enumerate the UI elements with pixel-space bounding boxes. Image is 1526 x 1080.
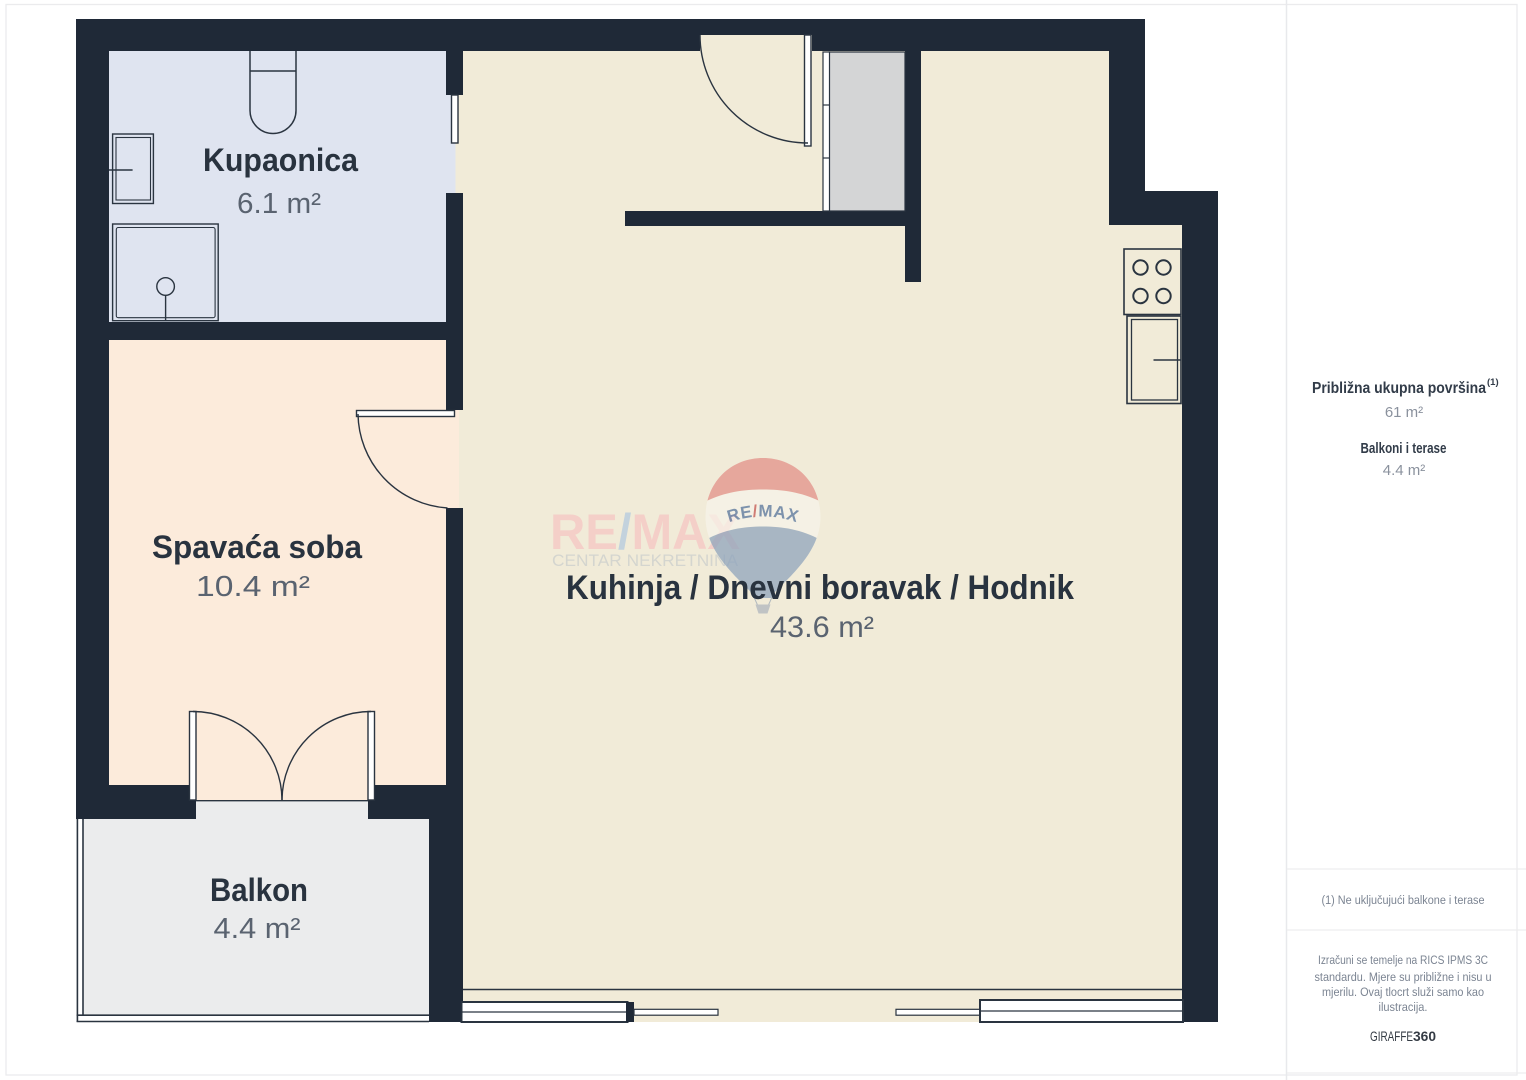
svg-text:61 m²: 61 m² [1385,404,1423,421]
svg-text:CENTAR NEKRETNINA: CENTAR NEKRETNINA [552,551,739,570]
svg-text:Kuhinja / Dnevni boravak / Hod: Kuhinja / Dnevni boravak / Hodnik [566,569,1074,607]
svg-text:Balkon: Balkon [210,872,308,908]
svg-text:Balkoni i terase: Balkoni i terase [1361,441,1447,457]
svg-text:4.4 m²: 4.4 m² [214,913,301,945]
svg-text:Približna ukupna površina: Približna ukupna površina [1312,380,1486,397]
svg-text:ilustracija.: ilustracija. [1379,1000,1428,1014]
svg-text:43.6 m²: 43.6 m² [770,611,874,644]
svg-text:Spavaća soba: Spavaća soba [152,529,362,565]
svg-text:10.4 m²: 10.4 m² [196,571,310,603]
svg-text:Kupaonica: Kupaonica [203,142,358,178]
svg-text:(1) Ne uključujući balkone i t: (1) Ne uključujući balkone i terase [1322,893,1485,907]
svg-text:Izračuni se temelje na RICS IP: Izračuni se temelje na RICS IPMS 3C [1318,953,1488,967]
svg-text:4.4 m²: 4.4 m² [1383,462,1426,479]
svg-text:mjerilu. Ovaj tlocrt služi sam: mjerilu. Ovaj tlocrt služi samo kao [1322,985,1484,999]
svg-text:standardu. Mjere su približne: standardu. Mjere su približne i nisu u [1315,970,1492,984]
svg-text:GIRAFFE: GIRAFFE [1370,1029,1413,1044]
svg-text:(1): (1) [1487,377,1499,388]
svg-text:6.1 m²: 6.1 m² [237,188,321,220]
svg-text:360: 360 [1413,1029,1436,1044]
